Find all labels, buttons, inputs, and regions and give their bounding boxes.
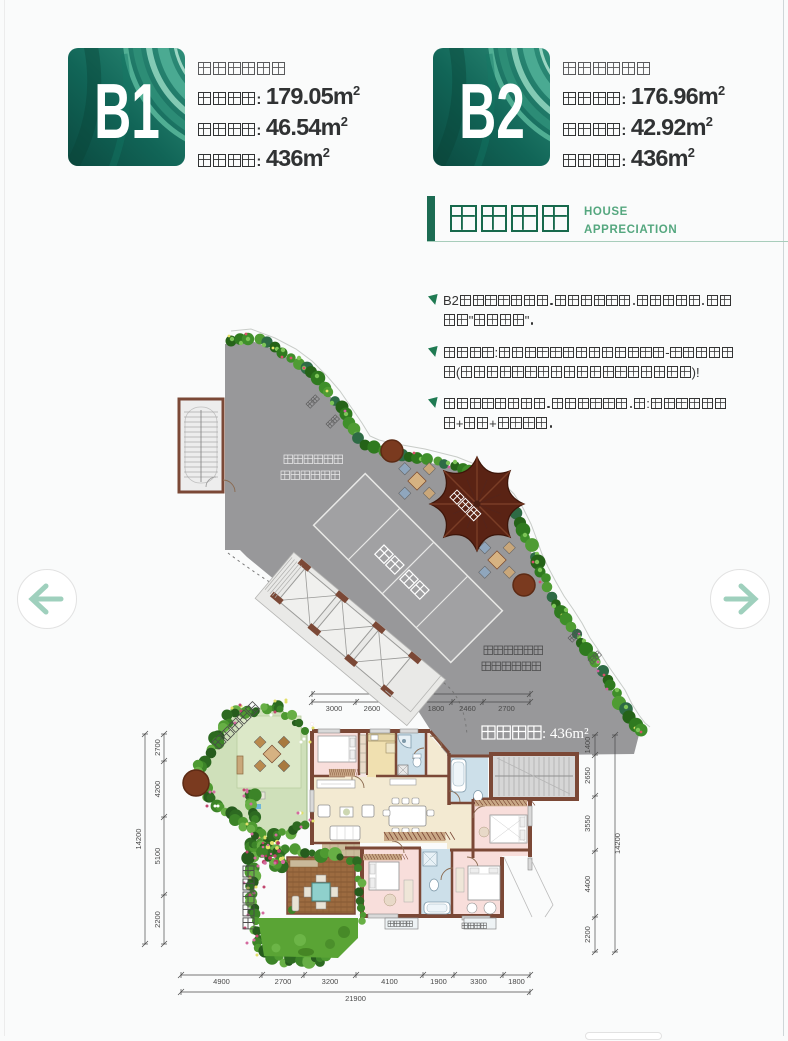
- svg-text:1800: 1800: [508, 977, 525, 986]
- svg-text:21900: 21900: [345, 994, 366, 1003]
- svg-text:1400: 1400: [583, 737, 592, 754]
- svg-text:14200: 14200: [134, 829, 143, 850]
- svg-text:3000: 3000: [326, 704, 343, 713]
- svg-text:3300: 3300: [470, 977, 487, 986]
- svg-text:4900: 4900: [213, 977, 230, 986]
- svg-text:4400: 4400: [583, 876, 592, 893]
- svg-text:2460: 2460: [459, 704, 476, 713]
- svg-text:2200: 2200: [583, 926, 592, 943]
- svg-text:5100: 5100: [153, 848, 162, 865]
- svg-text:1900: 1900: [430, 977, 447, 986]
- svg-text:2700: 2700: [153, 739, 162, 756]
- svg-text:2650: 2650: [583, 767, 592, 784]
- svg-text:4200: 4200: [153, 781, 162, 798]
- svg-text:2700: 2700: [275, 977, 292, 986]
- svg-text:2600: 2600: [364, 704, 381, 713]
- svg-text:14200: 14200: [613, 833, 622, 854]
- svg-text:1800: 1800: [428, 704, 445, 713]
- svg-text:2200: 2200: [153, 911, 162, 928]
- svg-text:3550: 3550: [583, 815, 592, 832]
- svg-text:2700: 2700: [498, 704, 515, 713]
- svg-text:3200: 3200: [322, 977, 339, 986]
- svg-text:4100: 4100: [381, 977, 398, 986]
